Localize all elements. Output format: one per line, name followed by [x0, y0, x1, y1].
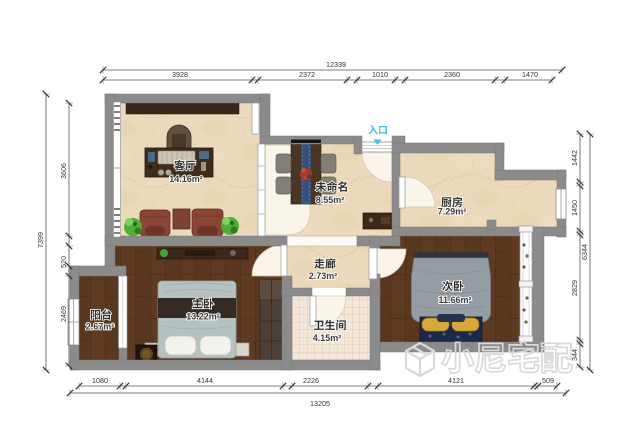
svg-text:2.73m²: 2.73m²	[309, 271, 338, 281]
svg-text:3928: 3928	[172, 70, 188, 79]
svg-text:4144: 4144	[197, 376, 213, 385]
svg-text:2469: 2469	[59, 306, 68, 322]
svg-text:3606: 3606	[59, 163, 68, 179]
svg-text:1450: 1450	[570, 200, 579, 216]
svg-text:1470: 1470	[522, 70, 538, 79]
svg-text:2226: 2226	[303, 376, 319, 385]
svg-text:4121: 4121	[448, 376, 464, 385]
svg-text:2829: 2829	[570, 280, 579, 296]
svg-text:4.15m²: 4.15m²	[313, 333, 342, 343]
svg-text:1442: 1442	[570, 150, 579, 166]
svg-text:14.16m²: 14.16m²	[169, 174, 203, 184]
svg-text:1010: 1010	[372, 70, 388, 79]
svg-text:11.66m²: 11.66m²	[438, 295, 471, 305]
svg-text:2372: 2372	[299, 70, 315, 79]
svg-text:12339: 12339	[326, 60, 346, 69]
svg-text:520: 520	[59, 256, 68, 268]
svg-text:13205: 13205	[310, 399, 330, 408]
svg-text:509: 509	[542, 376, 554, 385]
svg-text:1080: 1080	[92, 376, 108, 385]
svg-text:2.67m²: 2.67m²	[86, 322, 115, 332]
svg-text:7399: 7399	[36, 232, 45, 248]
svg-text:8.55m²: 8.55m²	[316, 195, 345, 205]
svg-text:7.29m²: 7.29m²	[438, 207, 467, 217]
svg-text:13.22m²: 13.22m²	[186, 312, 220, 322]
svg-text:6344: 6344	[580, 244, 589, 260]
svg-text:2360: 2360	[444, 70, 460, 79]
